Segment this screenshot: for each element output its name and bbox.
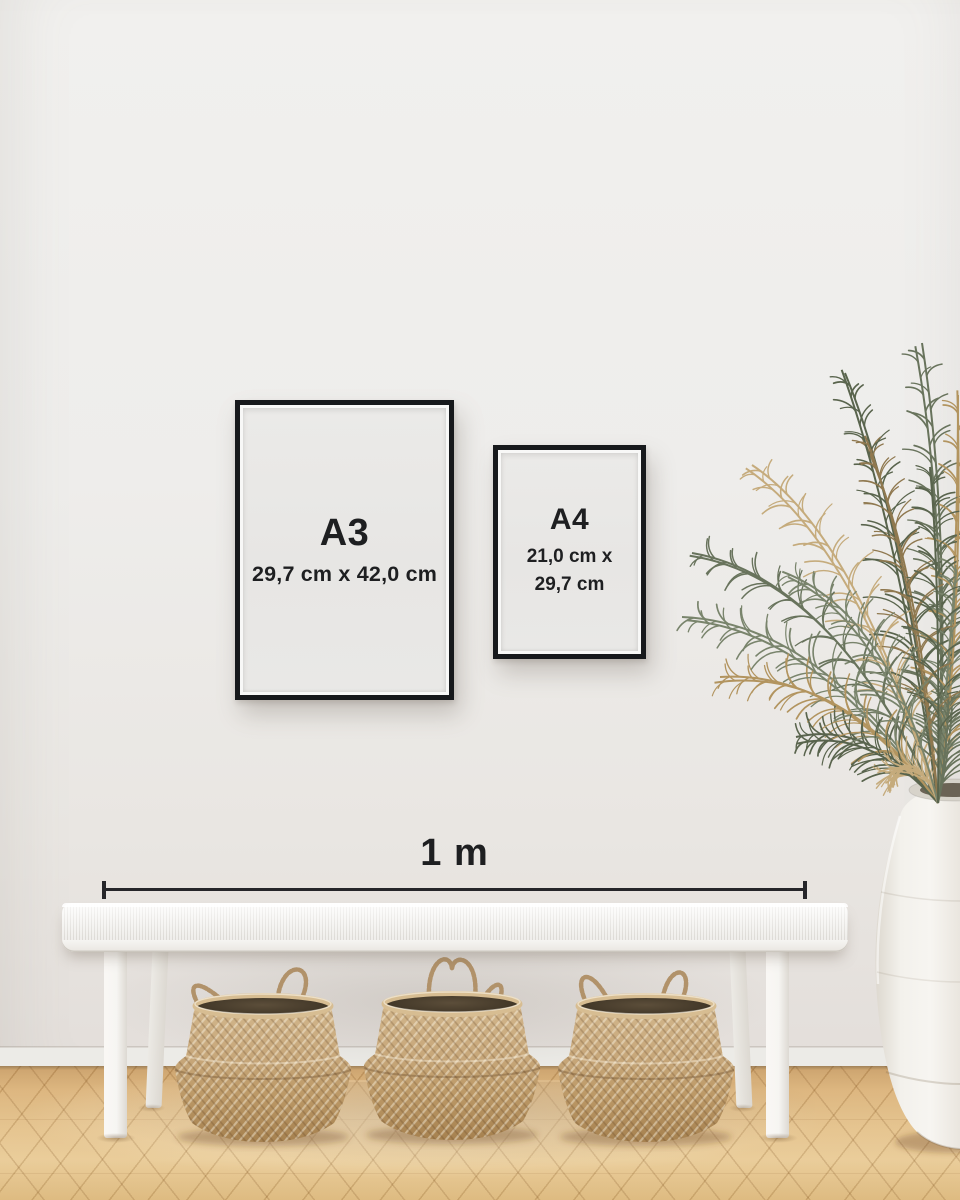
a4-size-line1: 21,0 cm x — [527, 543, 613, 571]
bench-leg-front-left — [104, 950, 127, 1138]
a4-size: 21,0 cm x 29,7 cm — [527, 543, 613, 599]
frame-a4: A4 21,0 cm x 29,7 cm — [493, 445, 646, 659]
frame-a3-paper: A3 29,7 cm x 42,0 cm — [243, 408, 446, 692]
frame-a4-mat: A4 21,0 cm x 29,7 cm — [498, 450, 641, 654]
basket-center — [357, 950, 547, 1150]
scale-tick-right — [803, 881, 807, 899]
scale-line — [102, 888, 807, 891]
frame-a4-paper: A4 21,0 cm x 29,7 cm — [501, 453, 638, 651]
a4-size-line2: 29,7 cm — [527, 571, 613, 599]
frame-a3-mat: A3 29,7 cm x 42,0 cm — [240, 405, 449, 695]
bench-leg-front-right — [766, 950, 789, 1138]
basket-left — [168, 952, 358, 1152]
scale-bar — [102, 881, 807, 899]
room-scene: A3 29,7 cm x 42,0 cm A4 21,0 cm x 29,7 c… — [0, 0, 960, 1200]
bench-seat — [62, 903, 848, 952]
a3-size: 29,7 cm x 42,0 cm — [252, 562, 437, 587]
scale-ruler: 1 m — [102, 832, 807, 899]
scale-label: 1 m — [102, 832, 807, 874]
palm-plant — [600, 325, 960, 825]
floor-vase — [853, 772, 960, 1170]
basket-right — [551, 952, 741, 1152]
a3-label: A3 — [320, 514, 370, 552]
a4-label: A4 — [550, 505, 589, 535]
frame-a3: A3 29,7 cm x 42,0 cm — [235, 400, 454, 700]
